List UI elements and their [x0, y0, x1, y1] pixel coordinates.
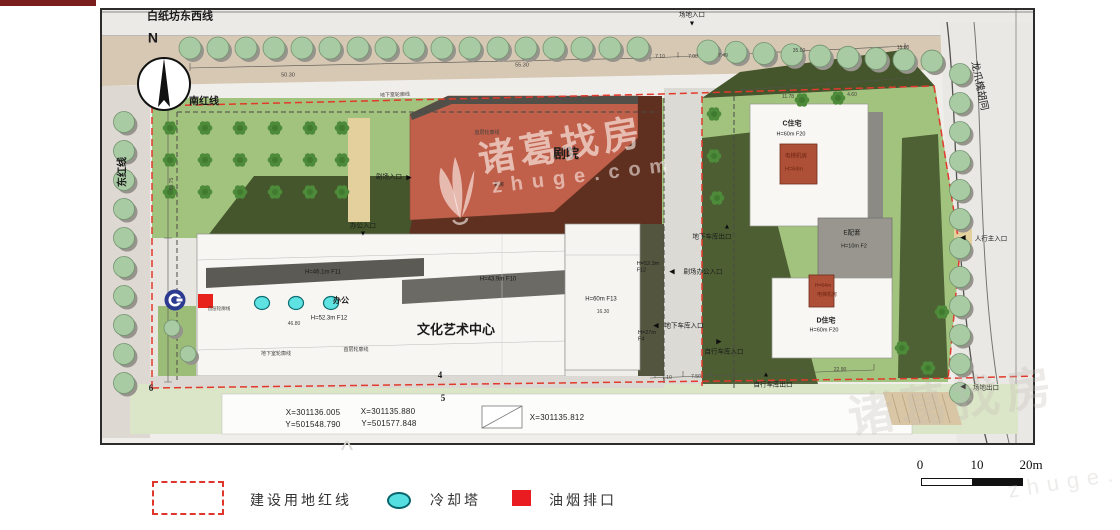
scale-20m: 20m: [1019, 457, 1042, 473]
legend-oil-outlet-swatch: [512, 490, 531, 506]
legend-cooling-tower-swatch: [387, 492, 411, 509]
north-compass: [138, 58, 190, 110]
scale-bar-white-segment: [922, 479, 973, 485]
legend-redline-label: 建设用地红线: [250, 490, 352, 510]
scale-10: 10: [971, 457, 984, 473]
diagonal-box: [482, 406, 522, 428]
c-elevator-room: [780, 144, 817, 184]
coordinate-band: [222, 394, 912, 434]
scale-bar-graphic: [921, 478, 1023, 486]
scale-0: 0: [917, 457, 924, 473]
yellow-path: [348, 118, 370, 222]
oil-smoke-outlet-marker: [198, 294, 213, 308]
east-dark-strip-2: [640, 224, 664, 264]
legend-oil-outlet-label: 油烟排口: [549, 490, 617, 510]
f13-tower: [565, 224, 640, 370]
east-dark-strip: [638, 262, 664, 388]
top-red-strip: [0, 0, 96, 6]
top-road: [102, 10, 1035, 36]
blue-circle-marker: [165, 290, 186, 311]
scale-bar-black-segment: [973, 479, 1023, 485]
d-elevator-room: [809, 275, 834, 307]
legend-redline-swatch: [152, 481, 224, 515]
cooling-tower-markers: [255, 297, 339, 310]
plan-frame: [100, 8, 1035, 445]
site-plan-page: 白纸坊东西线南红线东红线龙爪槐胡同N剧院文化艺术中心H=46.1m F11办公H…: [0, 0, 1120, 530]
art-center-building: [197, 234, 568, 376]
legend-cooling-tower-label: 冷却塔: [430, 490, 481, 510]
site-plan-drawing: [102, 10, 1035, 445]
